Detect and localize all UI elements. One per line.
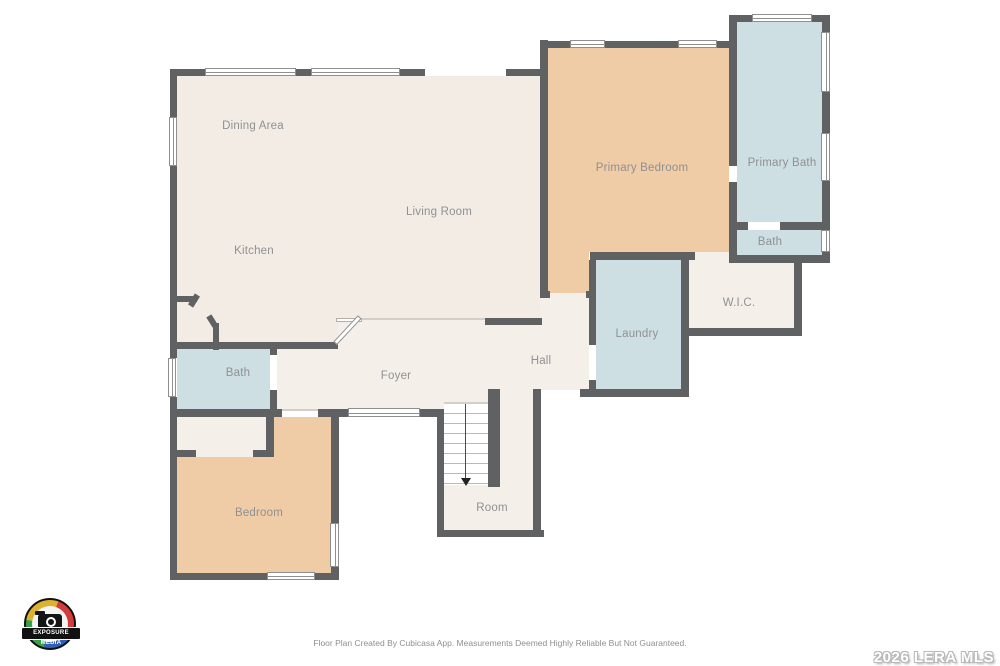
room-fill-bedroom-lobe [548, 250, 589, 293]
room-fill-primary-bedroom [548, 48, 729, 252]
footer-disclaimer: Floor Plan Created By Cubicasa App. Meas… [0, 638, 1000, 648]
wall [170, 573, 267, 580]
wall [794, 255, 802, 336]
camera-lens-icon [46, 617, 56, 627]
room-label-laundry: Laundry [616, 328, 659, 340]
room-label-wic: W.I.C. [723, 297, 756, 309]
wall [729, 15, 737, 166]
room-label-kitchen: Kitchen [234, 245, 274, 257]
wall [331, 411, 339, 523]
window [311, 68, 400, 76]
room-opening-line [362, 318, 485, 320]
door-jamb [540, 291, 550, 298]
wall [590, 252, 695, 260]
room-fill-bedroom-alcove [274, 417, 331, 457]
window [821, 230, 830, 252]
wall [488, 389, 500, 487]
wall [170, 166, 177, 358]
wall [331, 567, 339, 580]
window [168, 358, 176, 397]
wall [681, 328, 802, 336]
room-fill-laundry [596, 260, 681, 389]
room-fill-room-corridor [500, 390, 533, 488]
wall [729, 182, 737, 263]
wall [170, 69, 177, 117]
wall [485, 318, 542, 325]
wall [400, 69, 425, 76]
wall [737, 222, 748, 230]
staircase [444, 404, 488, 485]
room-label-foyer: Foyer [381, 370, 411, 382]
room-label-bath-lower: Bath [226, 367, 250, 379]
wall [540, 40, 548, 297]
window [267, 572, 315, 580]
mls-watermark: 2026 LERA MLS [874, 649, 994, 666]
stairs-down-arrow-icon [461, 478, 471, 486]
wall [540, 41, 570, 48]
wall [822, 15, 830, 32]
room-label-primary-bedroom: Primary Bedroom [596, 162, 688, 174]
window [570, 40, 605, 48]
wall [729, 15, 752, 22]
wall [170, 397, 177, 580]
wall [270, 390, 277, 417]
wall [437, 530, 544, 537]
window [169, 117, 177, 166]
wall [533, 389, 541, 537]
wall [177, 450, 196, 457]
room-fill-living [177, 76, 540, 319]
room-label-room: Room [476, 502, 507, 514]
window [821, 32, 830, 92]
room-label-bedroom: Bedroom [235, 507, 283, 519]
floor-plan: Dining Area Living Room Kitchen Primary … [0, 0, 1000, 666]
wall [580, 389, 689, 397]
window [205, 68, 296, 76]
wall [270, 342, 277, 355]
room-label-primary-bath: Primary Bath [748, 157, 817, 169]
room-fill-hall [540, 293, 589, 390]
window [821, 133, 830, 181]
room-label-dining: Dining Area [222, 120, 284, 132]
wall [605, 41, 678, 48]
wall [822, 92, 830, 133]
room-label-living: Living Room [406, 206, 472, 218]
room-fill-wic-door-gap [695, 252, 732, 260]
wall [318, 409, 348, 417]
wall [732, 255, 830, 263]
room-fill-bath-lower [177, 349, 270, 409]
wall [822, 181, 830, 230]
room-fill-primary-bath [737, 22, 822, 222]
wall [589, 260, 596, 345]
wall [170, 409, 282, 417]
stairs-direction-line [465, 404, 466, 478]
wall [253, 450, 266, 457]
door-opening-line [282, 409, 318, 411]
room-fill-foyer-left [277, 349, 338, 409]
wall [437, 414, 444, 537]
wall [681, 252, 689, 397]
window [330, 523, 339, 567]
window [348, 408, 420, 417]
room-label-hall: Hall [531, 355, 552, 367]
room-label-bath-upper: Bath [758, 236, 782, 248]
wall-stub [213, 323, 219, 350]
wall [296, 69, 311, 76]
window [678, 40, 717, 48]
room-fill-wic [689, 258, 794, 328]
window [752, 14, 812, 22]
wall [170, 342, 338, 349]
wall [266, 417, 274, 457]
wall [780, 222, 822, 230]
